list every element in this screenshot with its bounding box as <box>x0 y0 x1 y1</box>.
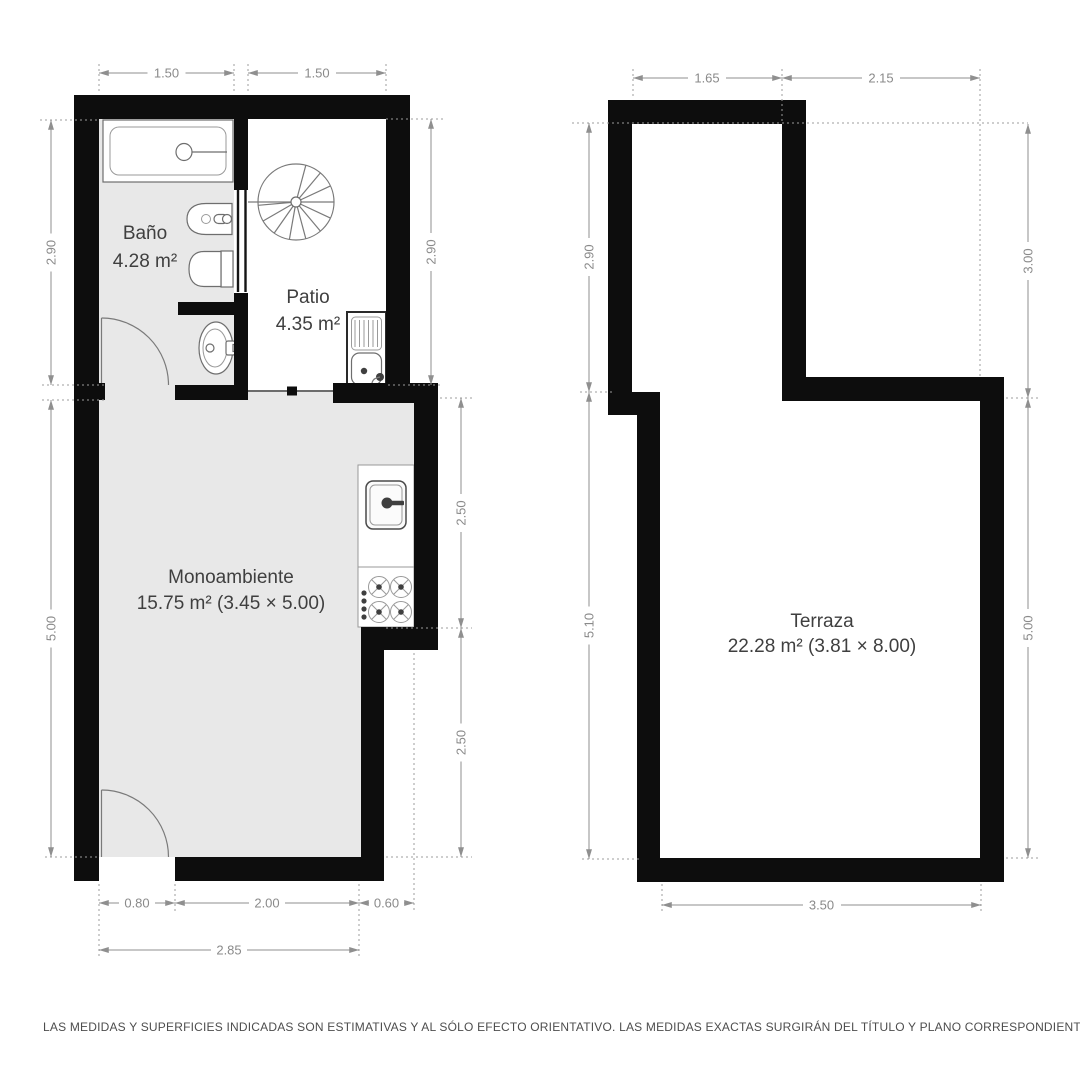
room-labels: Terraza 22.28 m² (3.81 × 8.00) <box>728 611 917 657</box>
dim-bottom-1: 3.50 <box>662 897 981 913</box>
dim-top-2: 2.15 <box>782 70 980 86</box>
dim-label: 2.15 <box>868 70 893 85</box>
dim-label: 0.80 <box>124 895 149 910</box>
wall-left <box>637 392 660 882</box>
wall-right <box>980 377 1004 882</box>
stove-knob <box>361 598 366 603</box>
dim-label: 2.00 <box>254 895 279 910</box>
wall-mid <box>782 377 1004 401</box>
dim-top-2: 1.50 <box>248 65 386 81</box>
dim-label: 2.90 <box>423 239 438 264</box>
wall-bottom-left <box>74 857 99 881</box>
wall-bottom <box>637 858 1004 882</box>
dim-label: 1.65 <box>694 70 719 85</box>
dim-label: 2.50 <box>453 730 468 755</box>
dim-label: 5.00 <box>43 616 58 641</box>
room-name: Baño <box>123 223 167 244</box>
wall-upper-left <box>608 100 632 392</box>
dim-left-2: 5.00 <box>43 400 59 857</box>
wall-top <box>74 95 410 119</box>
toilet <box>189 251 233 287</box>
floor-plan-canvas: 1.50 1.50 2.90 5.00 2.90 <box>0 0 1080 1080</box>
dim-left-1: 2.90 <box>581 123 597 392</box>
dim-label: 2.50 <box>453 500 468 525</box>
dim-label: 2.85 <box>216 942 241 957</box>
dim-label: 3.00 <box>1020 248 1035 273</box>
dim-label: 2.90 <box>581 244 596 269</box>
door-post <box>99 383 105 400</box>
dim-label: 5.00 <box>1020 615 1035 640</box>
wall-top <box>608 100 806 124</box>
wall-bottom <box>175 857 384 881</box>
dim-top-1: 1.65 <box>633 70 782 86</box>
laundry-sink <box>347 312 386 388</box>
spiral-staircase <box>248 164 334 240</box>
floor-plan-page: 1.50 1.50 2.90 5.00 2.90 <box>0 0 1080 1080</box>
dim-label: 5.10 <box>581 613 596 638</box>
left-plan: 1.50 1.50 2.90 5.00 2.90 <box>40 64 472 958</box>
wall-kitchen-bump <box>361 627 438 650</box>
dim-bottom-4: 2.85 <box>99 942 359 958</box>
wall-nook <box>178 302 234 315</box>
dim-left-2: 5.10 <box>581 392 597 859</box>
dim-right-2: 5.00 <box>1020 398 1036 858</box>
kitchen-faucet <box>382 498 393 509</box>
dim-top-1: 1.50 <box>99 65 234 81</box>
stove-knob <box>361 590 366 595</box>
dim-right-2: 2.50 <box>453 398 469 628</box>
opening-post <box>287 387 297 396</box>
bidet <box>187 204 232 235</box>
stove-knob <box>361 614 366 619</box>
dim-bottom-1: 0.80 <box>99 895 175 911</box>
dim-right-1: 2.90 <box>423 119 439 385</box>
dim-label: 3.50 <box>809 897 834 912</box>
footer-disclaimer: LAS MEDIDAS Y SUPERFICIES INDICADAS SON … <box>43 1019 1080 1034</box>
room-area: 15.75 m² (3.45 × 5.00) <box>137 593 326 614</box>
kitchen-counter <box>358 465 414 567</box>
dim-right-3: 2.50 <box>453 628 469 857</box>
sliding-door <box>234 190 248 292</box>
dim-right-1: 3.00 <box>1020 124 1036 398</box>
room-name: Terraza <box>790 611 854 632</box>
right-plan: 1.65 2.15 2.90 5.10 3.00 <box>572 69 1038 913</box>
walls <box>608 100 1004 882</box>
wall-mid-right <box>333 383 438 403</box>
wall-bano-patio-upper <box>234 119 248 190</box>
room-area: 22.28 m² (3.81 × 8.00) <box>728 636 917 657</box>
room-area: 4.28 m² <box>113 251 177 272</box>
wall-bano-patio-lower <box>234 293 248 400</box>
wall-patio-right <box>386 95 410 383</box>
dim-label: 1.50 <box>154 65 179 80</box>
bathtub <box>103 120 233 182</box>
dim-label: 2.90 <box>43 240 58 265</box>
stove <box>358 567 414 627</box>
room-name: Monoambiente <box>168 567 294 588</box>
dim-left-1: 2.90 <box>43 120 59 385</box>
wall-bath-south <box>175 385 248 400</box>
wall-mono-right-upper <box>414 403 438 650</box>
dim-label: 1.50 <box>304 65 329 80</box>
wall-mono-right-lower <box>361 650 384 881</box>
dim-label: 0.60 <box>374 895 399 910</box>
stove-knob <box>361 606 366 611</box>
wall-upper-right <box>782 100 806 380</box>
wall-left <box>74 95 99 881</box>
room-name: Patio <box>286 287 329 308</box>
dim-bottom-2: 2.00 <box>175 895 359 911</box>
room-area: 4.35 m² <box>276 314 340 335</box>
dim-bottom-3: 0.60 <box>359 895 414 911</box>
